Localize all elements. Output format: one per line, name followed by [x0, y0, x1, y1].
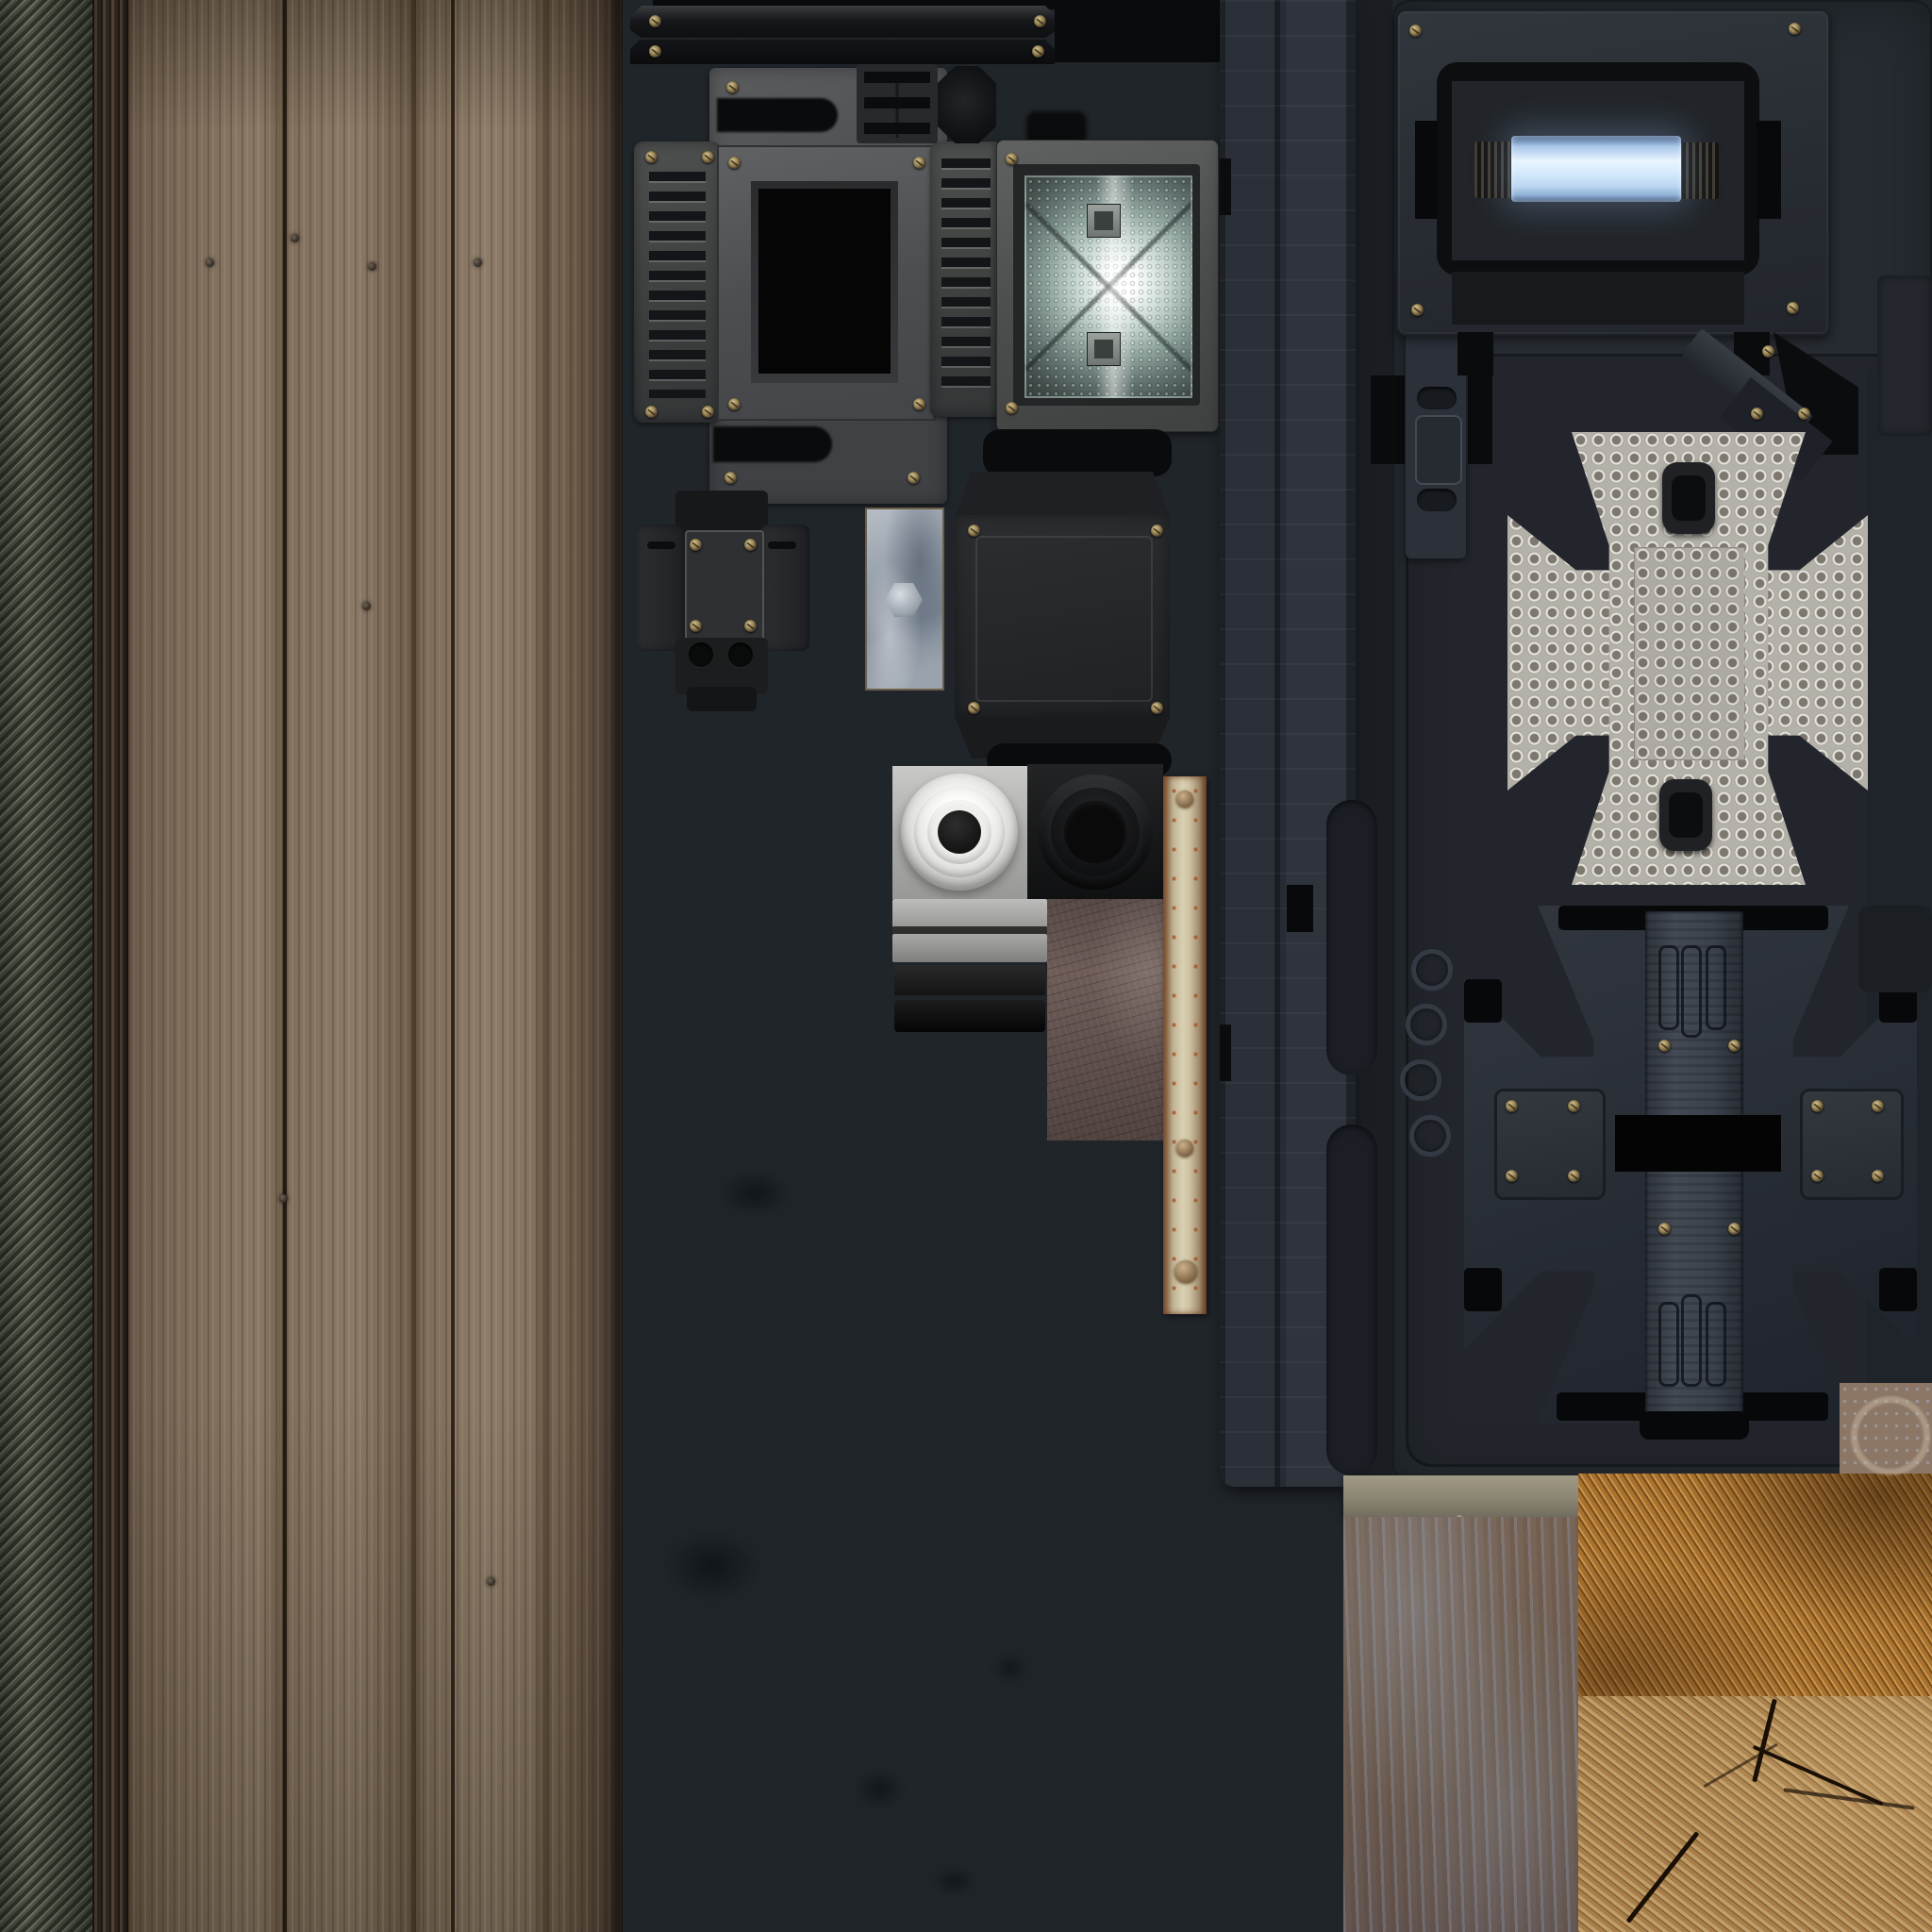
screw: [645, 406, 658, 418]
bracket-dash: [647, 541, 675, 549]
bracket-tail: [687, 687, 757, 711]
tube-clamp-right: [1679, 142, 1719, 199]
screw: [1789, 23, 1801, 35]
rust-panel-lip: [1343, 1475, 1579, 1519]
wood-plank-edge: [92, 0, 128, 1932]
screw: [744, 620, 757, 632]
cross-pad-bottom: [1659, 779, 1712, 851]
wood-crack: [1752, 1699, 1777, 1783]
grime-blotch: [717, 1170, 792, 1217]
stitch-groove: [1706, 1302, 1726, 1387]
nail: [474, 258, 482, 267]
screw: [744, 539, 757, 551]
screw: [702, 151, 714, 163]
nail: [368, 262, 376, 271]
screw: [1006, 402, 1018, 414]
trim-bar-dark-1: [894, 965, 1045, 995]
ribbed-metal-strip: [0, 0, 94, 1932]
grime-blotch: [932, 1866, 977, 1896]
rivet: [1176, 791, 1193, 808]
column-notch: [1220, 158, 1231, 215]
screw: [1787, 302, 1799, 314]
screw: [1811, 1170, 1824, 1182]
top-right-rounded-box: [1858, 906, 1932, 992]
embossed-ring: [1409, 1115, 1451, 1157]
embossed-ring: [1400, 1059, 1441, 1101]
screw: [1798, 408, 1810, 420]
screw: [1151, 525, 1163, 537]
grime-blotch: [854, 1769, 906, 1808]
dimpled-cross-center: [1634, 547, 1745, 760]
screw: [1409, 25, 1422, 37]
nail: [279, 1194, 288, 1203]
screw: [1411, 304, 1424, 316]
screw: [690, 620, 702, 632]
vent-slots-left: [649, 172, 706, 398]
rail-bar-upper: [630, 6, 1057, 38]
bracket-hole: [728, 642, 753, 667]
screw: [649, 15, 661, 27]
screw: [1568, 1170, 1580, 1182]
screw: [690, 539, 702, 551]
column-channel-lower: [1326, 1124, 1377, 1475]
screw: [1034, 15, 1046, 27]
cross-center-black-rect: [1615, 1115, 1781, 1172]
weathered-wood-planks: [128, 0, 623, 1932]
lamp-side-tab-right: [1757, 121, 1781, 219]
screw: [728, 157, 741, 169]
black-knob-center: [1064, 801, 1126, 863]
stitch-groove: [1706, 945, 1726, 1030]
handle-slot-lower: [713, 426, 832, 462]
lamp-holder-bottom: [1087, 332, 1121, 366]
lamp-lower-strip: [1452, 272, 1744, 325]
screw: [1568, 1100, 1580, 1112]
nail: [362, 602, 371, 610]
grime-blotch: [992, 1653, 1028, 1683]
tube-clamp-left: [1474, 142, 1516, 198]
rail-flank-left: [1371, 375, 1405, 464]
screw: [1006, 153, 1018, 165]
screw: [1151, 702, 1163, 714]
plank-seam: [451, 0, 455, 1932]
trim-bar-light-2: [892, 934, 1047, 962]
white-knob-center: [938, 810, 981, 854]
box-top-bar: [983, 429, 1172, 476]
cross-cap-corner: [1464, 979, 1502, 1023]
screw: [726, 81, 739, 93]
screw: [1762, 345, 1774, 358]
stain-ring-mark: [1851, 1396, 1930, 1475]
screw: [968, 525, 980, 537]
stitch-groove: [1658, 945, 1679, 1030]
screw: [1811, 1100, 1824, 1112]
screw: [1728, 1223, 1740, 1235]
lamp-leg: [1457, 332, 1493, 375]
stitch-groove: [1681, 945, 1702, 1038]
trim-divider: [892, 926, 1047, 934]
screw: [1506, 1170, 1518, 1182]
rusty-wood-batten: [1163, 776, 1207, 1314]
screw: [728, 398, 741, 410]
nail: [206, 258, 214, 267]
glow-tube: [1511, 136, 1681, 202]
grime-blotch: [660, 1528, 764, 1604]
embossed-ring: [1411, 949, 1453, 991]
nail: [487, 1577, 495, 1586]
screw: [913, 398, 925, 410]
plank-edge-shadow: [604, 0, 623, 1932]
bracket-hole: [689, 642, 713, 667]
screw: [1032, 45, 1044, 58]
column-channel-upper: [1326, 800, 1377, 1075]
sawn-wood-block: [1578, 1474, 1932, 1698]
trim-bar-light-1: [892, 899, 1047, 927]
screw: [968, 702, 980, 714]
bracket-top-flap: [675, 491, 768, 536]
scratched-leather-panel: [1047, 899, 1168, 1141]
screw: [1872, 1100, 1884, 1112]
screw: [1872, 1170, 1884, 1182]
screw: [1728, 1040, 1740, 1052]
cross-bottom-bar: [1640, 1411, 1749, 1440]
black-screen: [758, 189, 891, 374]
rivet: [1174, 1260, 1197, 1283]
screw: [702, 406, 714, 418]
plank-seam: [283, 0, 287, 1932]
screw: [645, 151, 658, 163]
bracket-dash: [768, 541, 796, 549]
rail-slot: [1417, 489, 1457, 511]
end-grain-wood-block: [1578, 1696, 1932, 1932]
box-top-flange: [955, 472, 1170, 517]
texture-atlas-canvas: [0, 0, 1932, 1932]
octagon-cap: [938, 66, 996, 143]
screw: [649, 45, 661, 58]
trim-bar-dark-2: [894, 1000, 1045, 1032]
bracket-bottom-flap: [675, 638, 768, 694]
rail-slot: [1417, 387, 1457, 409]
rail-bar-end-block: [1055, 6, 1232, 62]
wood-crack: [1703, 1743, 1777, 1789]
column-notch: [1220, 1024, 1231, 1081]
screw: [1506, 1100, 1518, 1112]
cross-cap-corner: [1879, 1268, 1917, 1311]
rail-bar-lower: [630, 40, 1055, 64]
nail: [291, 234, 299, 242]
stitch-groove: [1681, 1294, 1702, 1387]
screw: [908, 472, 920, 484]
embossed-ring: [1406, 1004, 1447, 1045]
cross-cap-corner: [1464, 1268, 1502, 1311]
lamp-side-tab-left: [1415, 121, 1438, 219]
rail-flank-right: [1468, 375, 1492, 464]
box-body-outline: [975, 536, 1153, 702]
lamp-holder-top: [1087, 204, 1121, 238]
handle-slot-upper: [717, 98, 838, 132]
rust-panel-body: [1343, 1517, 1579, 1932]
vent-slots-right: [941, 158, 991, 396]
rail-window: [1415, 415, 1462, 485]
screw: [1658, 1040, 1671, 1052]
screw: [724, 472, 737, 484]
screw: [1658, 1223, 1671, 1235]
ribbed-connector-block: [857, 64, 938, 143]
wood-crack: [1753, 1745, 1884, 1807]
column-slot: [1287, 885, 1313, 932]
right-edge-piece: [1877, 275, 1932, 436]
cross-pad-top: [1662, 462, 1715, 534]
rivet: [1176, 1140, 1193, 1157]
stitch-groove: [1658, 1302, 1679, 1387]
screw: [1751, 408, 1763, 420]
wood-crack: [1626, 1831, 1700, 1924]
screw: [913, 157, 925, 169]
